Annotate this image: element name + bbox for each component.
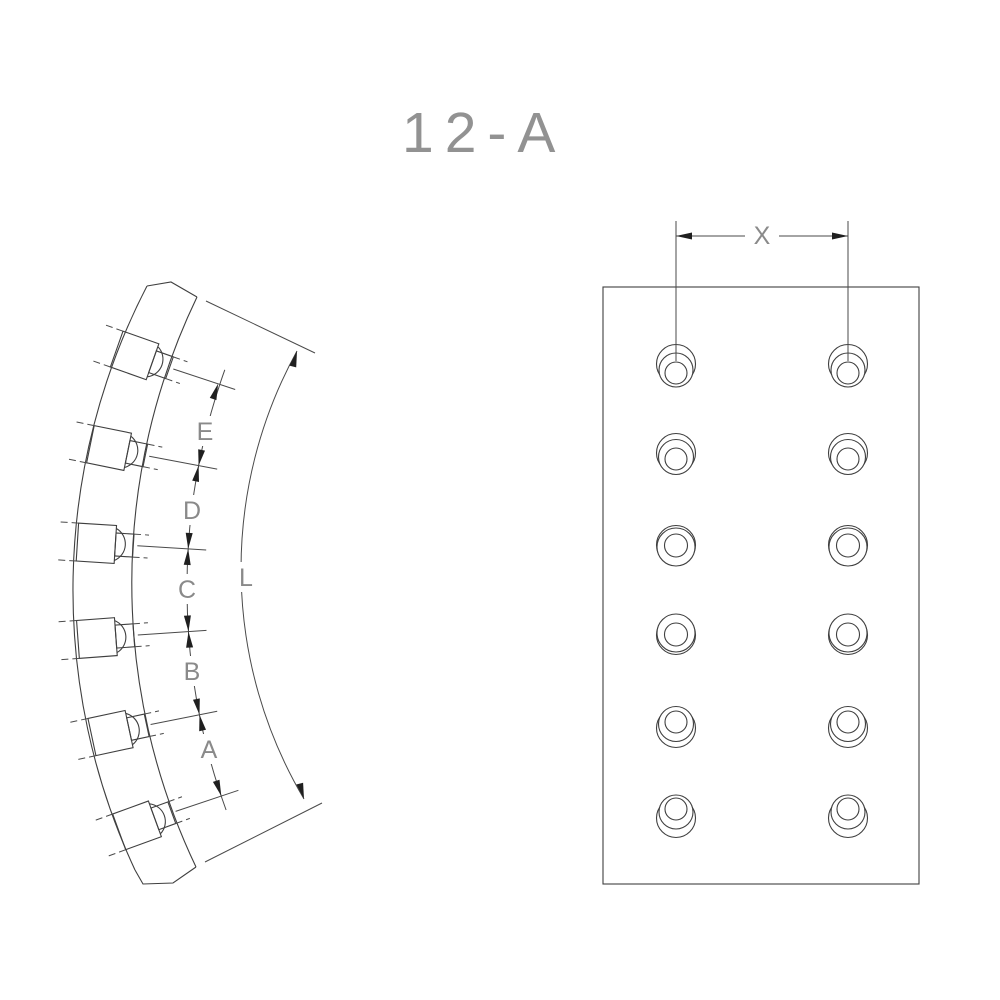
rivet-hole-r5c1 [657, 707, 696, 748]
dimension-arrowhead [213, 780, 221, 796]
hole-inner-circle [837, 448, 859, 470]
hidden-line [144, 711, 159, 714]
rivet-profile-3 [58, 522, 149, 566]
bottom-end-face [135, 867, 196, 884]
front-view: X [603, 221, 919, 884]
dimension-arrowhead [184, 615, 191, 631]
extension-line-rivet-4 [138, 630, 207, 635]
hole-inner-circle [665, 711, 687, 733]
hidden-line [143, 467, 158, 470]
hole-neck-outline [151, 802, 176, 830]
extension-line-rivet-6 [176, 790, 239, 811]
dimension-arrowhead [296, 783, 304, 799]
rivet-hole-r4c2 [829, 614, 868, 655]
extension-line-rivet-3 [137, 546, 206, 550]
arc-length-label: L [239, 564, 253, 592]
dimension-arrowhead [184, 549, 191, 565]
hidden-line [134, 534, 149, 535]
dimension-arrowhead [676, 233, 692, 240]
hole-inner-circle [665, 534, 688, 557]
dimension-arrowhead [210, 384, 218, 400]
rivet-hole-r3c1 [657, 526, 696, 567]
hidden-line [93, 361, 110, 367]
dimension-arrowhead [186, 533, 193, 549]
hidden-line [148, 444, 163, 447]
hidden-line [96, 814, 113, 820]
rivet-profile-1 [93, 325, 190, 390]
hidden-line [149, 733, 164, 736]
spacing-label: X [754, 222, 771, 250]
rivet-hole-r2c2 [829, 434, 868, 475]
extension-line-rivet-2 [149, 456, 217, 469]
extension-line-rivet-5 [151, 711, 218, 724]
dimension-arrowhead [192, 466, 199, 482]
dimension-arrowhead [832, 233, 848, 240]
hidden-line [133, 623, 148, 624]
dimension-label-e: E [197, 418, 214, 446]
dimension-arrowhead [193, 698, 200, 714]
dimension-label-c: C [178, 576, 196, 604]
rivet-hole-r3c2 [829, 526, 868, 567]
hole-inner-circle [665, 798, 687, 820]
rivet-profile-4 [59, 615, 151, 659]
counterbore-outline [76, 523, 116, 563]
hole-inner-circle [837, 623, 860, 646]
hidden-line [166, 379, 180, 384]
engineering-drawing-canvas: 12-A [0, 0, 1000, 1000]
hidden-line [69, 459, 87, 463]
hidden-line [133, 557, 148, 558]
outer-arc [73, 286, 147, 870]
hidden-line [173, 357, 187, 362]
hidden-line [176, 818, 190, 823]
extension-line-rivet-1 [173, 369, 235, 390]
extension-line-top [206, 301, 315, 353]
rivet-hole-r6c2 [829, 795, 868, 838]
dimension-arrowhead [289, 351, 297, 367]
hole-inner-circle [837, 798, 859, 820]
hidden-line [109, 850, 126, 856]
rivet-profile-5 [70, 704, 165, 760]
hole-inner-circle [665, 623, 688, 646]
counterbore-outline [77, 618, 118, 659]
counterbore-outline [88, 710, 133, 755]
lining-outline [603, 287, 919, 884]
dimension-label-b: B [184, 658, 201, 686]
rivet-hole-r5c2 [829, 707, 868, 748]
dimension-arrowhead [186, 632, 193, 648]
counterbore-outline [113, 801, 162, 850]
counterbore-outline [87, 426, 132, 471]
hole-neck-outline [149, 351, 174, 379]
rivet-hole-r6c1 [657, 795, 696, 838]
hidden-line [135, 646, 150, 647]
hole-inner-circle [665, 448, 687, 470]
hole-inner-circle [837, 362, 859, 384]
rivet-hole-r4c1 [657, 614, 696, 655]
extension-line-bottom [205, 803, 322, 862]
hidden-line [77, 422, 95, 426]
rivet-profile-6 [96, 790, 193, 856]
dimension-arrowhead [199, 715, 206, 731]
dimension-arrowhead [198, 449, 205, 465]
top-end-face [147, 282, 197, 297]
hole-inner-circle [837, 534, 860, 557]
technical-drawing: E D C B A L [0, 0, 1000, 1000]
hidden-line [106, 325, 123, 331]
hidden-line [168, 797, 182, 802]
counterbore-outline [110, 331, 158, 379]
hole-inner-circle [837, 711, 859, 733]
dimension-label-d: D [183, 497, 201, 525]
hidden-line [78, 756, 96, 760]
side-view: E D C B A L [58, 282, 322, 884]
hole-inner-circle [665, 362, 687, 384]
dimension-label-a: A [201, 736, 218, 764]
rivet-hole-r2c1 [657, 434, 696, 475]
